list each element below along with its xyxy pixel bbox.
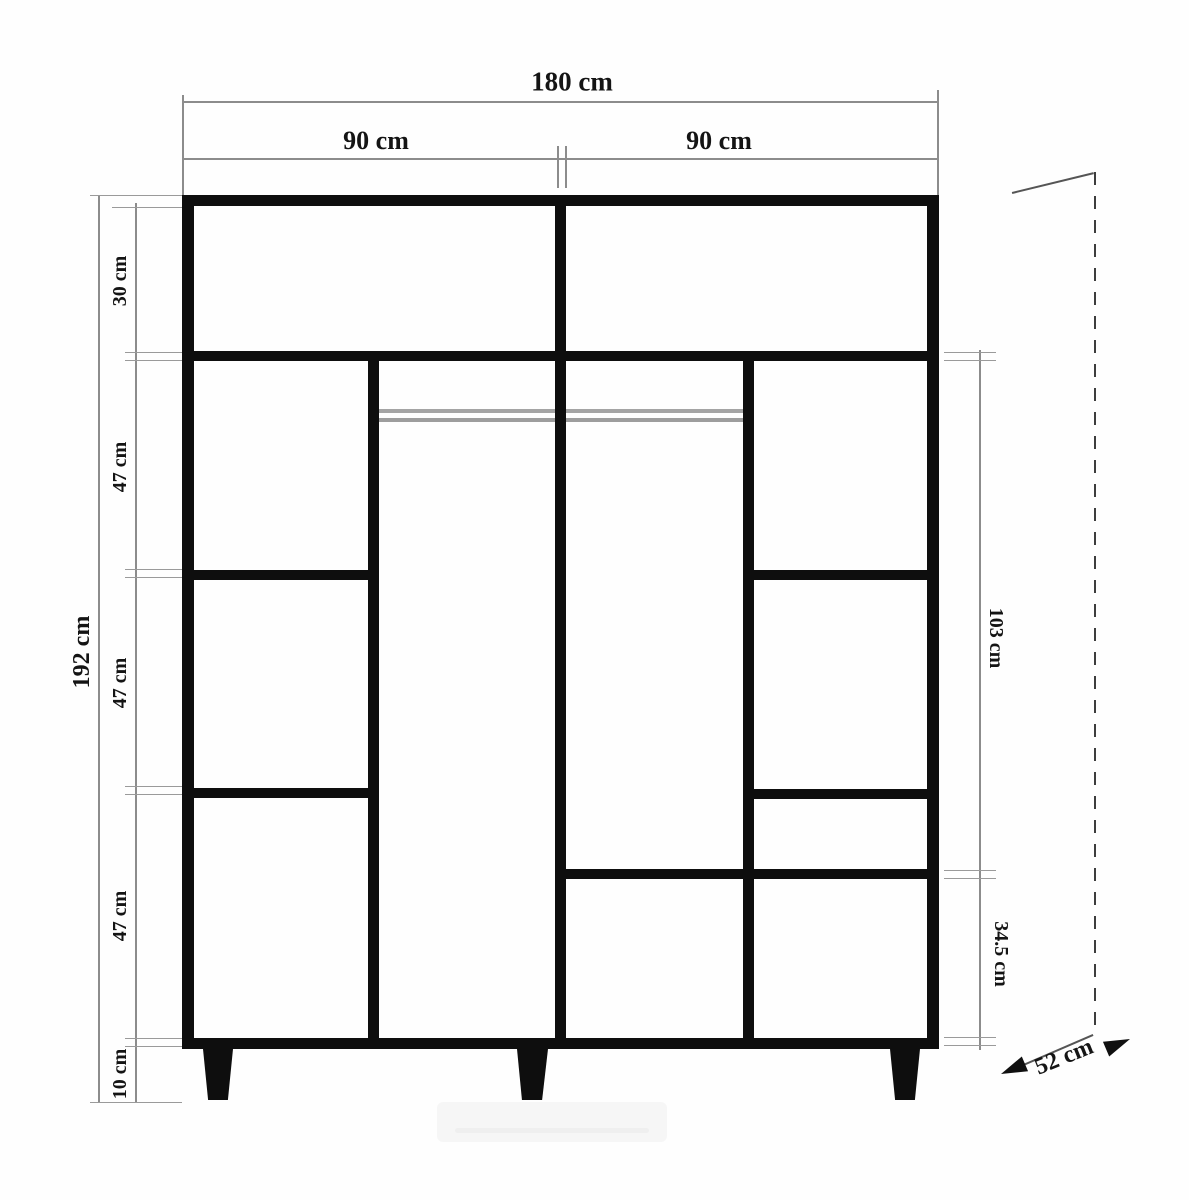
tick-47c-a (125, 1038, 182, 1039)
tick-30-a (125, 352, 182, 353)
tick-47c-b (125, 1046, 182, 1047)
tick-47a-b (125, 577, 182, 578)
label-right-lower: 34.5 cm (991, 921, 1011, 987)
depth-dashed-line (1094, 172, 1096, 1034)
wardrobe-diagram: 180 cm 90 cm 90 cm 192 cm 30 cm 47 cm 47… (0, 0, 1189, 1200)
shelf-right-1 (754, 570, 927, 580)
leg-left (203, 1049, 233, 1100)
dim-line-total-height (98, 195, 100, 1102)
hanging-rod-left (379, 409, 555, 422)
divider-right (743, 351, 754, 1049)
label-depth: 52 cm (1031, 1035, 1096, 1080)
dim-line-sections (135, 203, 137, 1102)
depth-arrow-left-icon (998, 1056, 1028, 1081)
tick-47b-b (125, 794, 182, 795)
tick-right-mid-a (944, 870, 996, 871)
shelf-right-2 (754, 789, 927, 799)
dim-line-right-chain (979, 350, 981, 1050)
tick-right-top-b (944, 360, 996, 361)
frame-right (927, 195, 939, 1049)
leg-right (890, 1049, 920, 1100)
tick-right-top-a (944, 352, 996, 353)
label-section-30: 30 cm (110, 256, 130, 307)
tick-bottom (90, 1102, 182, 1103)
centre-tick-1 (557, 146, 559, 188)
extension-line-left (182, 95, 184, 195)
label-section-47-1: 47 cm (110, 442, 130, 493)
label-left-half-width: 90 cm (343, 128, 409, 154)
frame-left (182, 195, 194, 1049)
tick-47b-a (125, 786, 182, 787)
divider-centre (555, 195, 566, 1049)
tick-top (90, 195, 182, 196)
label-total-height: 192 cm (70, 616, 94, 689)
leg-centre (517, 1049, 548, 1100)
dim-line-total-width (182, 101, 939, 103)
shelf-left-1 (194, 570, 368, 580)
shelf-left-2 (194, 788, 368, 798)
label-right-half-width: 90 cm (686, 128, 752, 154)
tick-right-mid-b (944, 878, 996, 879)
tick-right-bottom-a (944, 1037, 996, 1038)
label-right-upper: 103 cm (986, 608, 1006, 669)
dim-line-half-widths (182, 158, 939, 160)
centre-tick-2 (565, 146, 567, 188)
tick-47a-a (125, 569, 182, 570)
tick-top-inner (112, 207, 182, 208)
watermark (437, 1102, 667, 1142)
tick-30-b (125, 360, 182, 361)
label-section-10: 10 cm (110, 1049, 130, 1100)
depth-perspective-line (1012, 172, 1094, 193)
tick-right-bottom-b (944, 1045, 996, 1046)
label-section-47-3: 47 cm (110, 891, 130, 942)
extension-line-right (937, 90, 939, 195)
label-section-47-2: 47 cm (110, 658, 130, 709)
depth-arrow-right-icon (1103, 1032, 1133, 1057)
divider-left (368, 351, 379, 1049)
hanging-rod-right (566, 409, 743, 422)
label-total-width: 180 cm (531, 69, 613, 96)
